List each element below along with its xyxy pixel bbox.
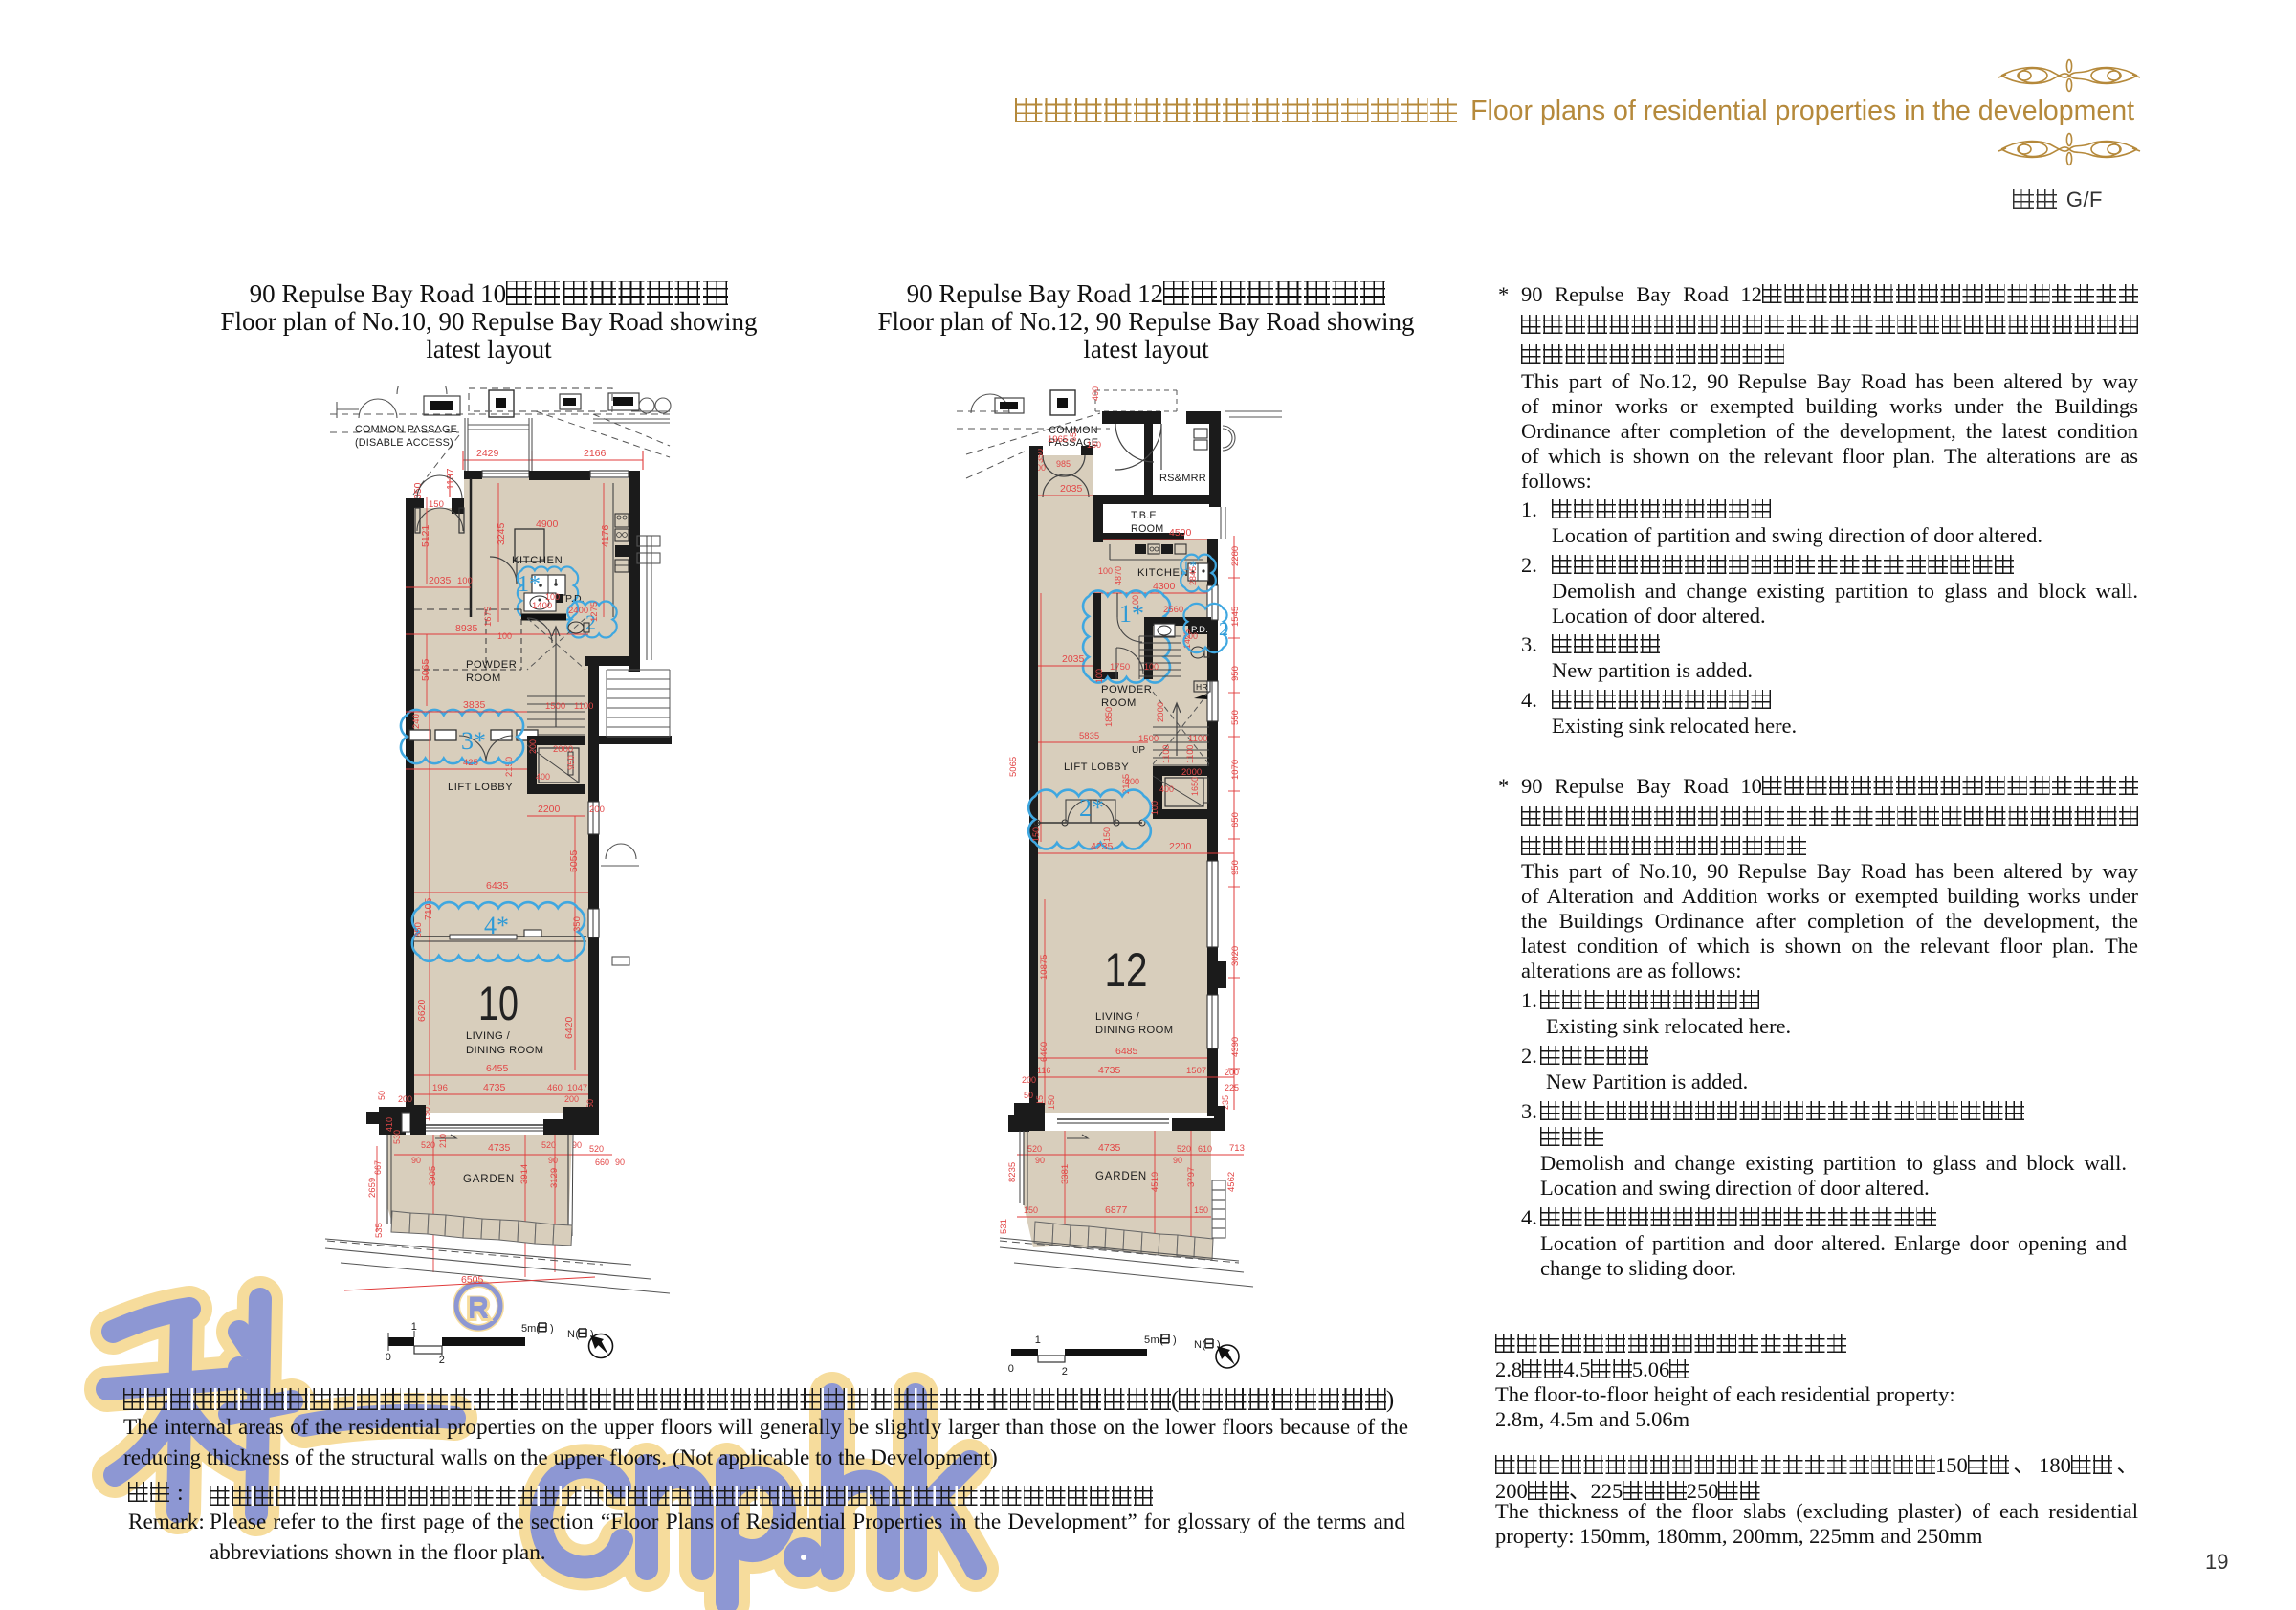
svg-text:10875: 10875 bbox=[1039, 955, 1049, 980]
svg-text:150: 150 bbox=[1194, 1205, 1208, 1215]
svg-text:2: 2 bbox=[1062, 1366, 1069, 1378]
svg-text:610: 610 bbox=[1198, 1144, 1212, 1154]
svg-text:6455: 6455 bbox=[486, 1063, 509, 1074]
svg-text:1850: 1850 bbox=[1104, 707, 1115, 727]
svg-text:0: 0 bbox=[1008, 1363, 1015, 1375]
svg-text:520: 520 bbox=[589, 1144, 604, 1154]
svg-text:4735: 4735 bbox=[1098, 1065, 1121, 1076]
svg-text:HR: HR bbox=[1196, 682, 1208, 692]
svg-text:6435: 6435 bbox=[486, 880, 509, 892]
svg-text:2000: 2000 bbox=[553, 744, 573, 755]
svg-text:2200: 2200 bbox=[1169, 841, 1192, 852]
svg-text:0: 0 bbox=[386, 1352, 392, 1363]
svg-text:2280: 2280 bbox=[1230, 546, 1241, 566]
svg-text:1965: 1965 bbox=[1048, 434, 1068, 445]
svg-text:2659: 2659 bbox=[367, 1178, 378, 1198]
svg-text:350: 350 bbox=[413, 922, 424, 937]
svg-text:LIFT LOBBY: LIFT LOBBY bbox=[448, 782, 513, 793]
svg-text:4900: 4900 bbox=[536, 518, 559, 530]
svg-text:LIVING /: LIVING / bbox=[1095, 1011, 1140, 1023]
svg-text:90: 90 bbox=[572, 1140, 582, 1150]
svg-text:4870: 4870 bbox=[1114, 566, 1123, 585]
svg-text:90: 90 bbox=[1035, 1156, 1045, 1165]
svg-text:3914: 3914 bbox=[519, 1164, 530, 1184]
svg-text:4500: 4500 bbox=[1169, 527, 1192, 539]
svg-text:ROOM: ROOM bbox=[1131, 523, 1163, 535]
svg-text:1100: 1100 bbox=[574, 701, 593, 712]
svg-text:50: 50 bbox=[1024, 1091, 1033, 1100]
svg-text:1100: 1100 bbox=[1188, 734, 1207, 744]
svg-text:985: 985 bbox=[1056, 459, 1071, 469]
svg-text:GARDEN: GARDEN bbox=[463, 1174, 515, 1185]
svg-text:410: 410 bbox=[385, 1117, 394, 1132]
svg-text:520: 520 bbox=[1027, 1144, 1042, 1154]
svg-text:4235: 4235 bbox=[1091, 841, 1114, 852]
svg-text:100: 100 bbox=[545, 592, 560, 602]
svg-text:5m(: 5m( bbox=[521, 1323, 540, 1334]
svg-text:100: 100 bbox=[1094, 669, 1104, 683]
svg-text:950: 950 bbox=[1230, 860, 1241, 875]
svg-text:1047: 1047 bbox=[567, 1083, 587, 1093]
svg-text:400: 400 bbox=[536, 772, 550, 782]
svg-text:200: 200 bbox=[398, 1094, 412, 1104]
svg-text:N(: N( bbox=[567, 1329, 579, 1340]
svg-text:DINING ROOM: DINING ROOM bbox=[466, 1045, 543, 1056]
svg-text:1100: 1100 bbox=[1161, 745, 1171, 763]
svg-text:2035: 2035 bbox=[1060, 483, 1083, 495]
svg-text:225: 225 bbox=[1225, 1083, 1239, 1092]
svg-text:2000: 2000 bbox=[1156, 702, 1166, 722]
svg-text:1: 1 bbox=[1035, 1334, 1042, 1346]
svg-text:90: 90 bbox=[615, 1158, 625, 1167]
svg-text:1275: 1275 bbox=[589, 602, 600, 622]
svg-text:6460: 6460 bbox=[1039, 1042, 1049, 1062]
svg-text:5055: 5055 bbox=[568, 849, 580, 872]
svg-text:2: 2 bbox=[1219, 619, 1228, 640]
svg-text:4176: 4176 bbox=[600, 524, 611, 547]
svg-text:4735: 4735 bbox=[483, 1082, 506, 1093]
svg-text:1750: 1750 bbox=[1110, 662, 1130, 673]
svg-text:2000: 2000 bbox=[1181, 767, 1202, 778]
svg-text:200: 200 bbox=[1125, 777, 1139, 786]
svg-text:10: 10 bbox=[478, 977, 519, 1030]
svg-text:3020: 3020 bbox=[1230, 946, 1241, 966]
svg-text:5835: 5835 bbox=[1079, 731, 1099, 741]
svg-text:2429: 2429 bbox=[476, 448, 499, 459]
svg-text:667: 667 bbox=[373, 1160, 383, 1175]
svg-text:(DISABLE ACCESS): (DISABLE ACCESS) bbox=[355, 437, 453, 449]
svg-text:COMMON PASSAGE: COMMON PASSAGE bbox=[355, 424, 457, 435]
svg-text:200: 200 bbox=[528, 739, 538, 754]
svg-text:1100: 1100 bbox=[1185, 745, 1195, 763]
svg-text:150: 150 bbox=[1087, 440, 1101, 450]
svg-text:): ) bbox=[550, 1323, 554, 1334]
svg-text:150: 150 bbox=[1102, 827, 1112, 842]
svg-text:4519: 4519 bbox=[1150, 1172, 1160, 1192]
svg-text:1507: 1507 bbox=[1186, 1066, 1206, 1076]
svg-text:950: 950 bbox=[566, 755, 577, 770]
svg-text:6877: 6877 bbox=[1105, 1204, 1128, 1216]
svg-text:1400: 1400 bbox=[532, 601, 552, 611]
svg-text:50: 50 bbox=[377, 1091, 386, 1100]
svg-text:3129: 3129 bbox=[549, 1168, 560, 1188]
svg-text:196: 196 bbox=[432, 1083, 448, 1093]
svg-text:100: 100 bbox=[1131, 595, 1140, 609]
svg-text:5065: 5065 bbox=[1008, 757, 1019, 777]
svg-text:4735: 4735 bbox=[1098, 1142, 1121, 1154]
svg-text:520: 520 bbox=[1177, 1144, 1191, 1154]
svg-text:3*: 3* bbox=[461, 727, 486, 755]
svg-text:1070: 1070 bbox=[1230, 760, 1241, 780]
svg-text:4*: 4* bbox=[484, 912, 509, 939]
svg-text:150: 150 bbox=[1024, 1205, 1038, 1215]
svg-text:200: 200 bbox=[1022, 1075, 1036, 1085]
svg-text:2845: 2845 bbox=[1188, 566, 1198, 585]
svg-text:2166: 2166 bbox=[584, 448, 607, 459]
svg-text:200: 200 bbox=[589, 805, 605, 815]
svg-text:3797: 3797 bbox=[1186, 1167, 1197, 1187]
svg-text:90: 90 bbox=[548, 1156, 558, 1165]
svg-text:): ) bbox=[1173, 1334, 1177, 1346]
svg-text:T.B.E: T.B.E bbox=[1131, 510, 1157, 521]
svg-text:650: 650 bbox=[1230, 812, 1241, 827]
svg-text:5121: 5121 bbox=[420, 524, 431, 547]
svg-text:116: 116 bbox=[1037, 1066, 1050, 1075]
svg-text:2035: 2035 bbox=[429, 575, 452, 586]
svg-text:210: 210 bbox=[438, 1134, 448, 1148]
svg-text:1500: 1500 bbox=[545, 701, 565, 712]
svg-text:425: 425 bbox=[463, 758, 478, 768]
svg-text:ROOM: ROOM bbox=[466, 673, 501, 684]
svg-text:3835: 3835 bbox=[463, 699, 486, 711]
svg-text:1545: 1545 bbox=[1230, 607, 1241, 627]
svg-text:100: 100 bbox=[1098, 566, 1113, 576]
svg-text:1: 1 bbox=[411, 1321, 418, 1333]
svg-text:2400: 2400 bbox=[568, 606, 588, 616]
svg-text:RS&MRR: RS&MRR bbox=[1159, 473, 1206, 484]
svg-text:POWDER: POWDER bbox=[1101, 684, 1152, 695]
svg-text:520: 520 bbox=[541, 1140, 556, 1150]
svg-text:2150: 2150 bbox=[504, 757, 515, 777]
svg-text:400: 400 bbox=[1159, 784, 1174, 794]
svg-text:535: 535 bbox=[374, 1223, 385, 1238]
svg-text:8935: 8935 bbox=[455, 623, 478, 634]
svg-text:100: 100 bbox=[1144, 662, 1159, 672]
svg-text:2035: 2035 bbox=[1062, 653, 1085, 665]
svg-text:460: 460 bbox=[547, 1083, 563, 1093]
svg-text:2560: 2560 bbox=[1163, 605, 1183, 615]
svg-text:350: 350 bbox=[572, 916, 583, 932]
svg-text:100: 100 bbox=[497, 631, 512, 641]
svg-text:713: 713 bbox=[1229, 1143, 1245, 1154]
svg-text:6420: 6420 bbox=[563, 1016, 575, 1039]
svg-text:100: 100 bbox=[457, 576, 473, 586]
svg-text:950: 950 bbox=[1230, 666, 1241, 681]
svg-text:90: 90 bbox=[411, 1156, 421, 1165]
svg-text:LIVING /: LIVING / bbox=[466, 1030, 511, 1042]
svg-text:240: 240 bbox=[411, 714, 422, 729]
svg-text:4735: 4735 bbox=[488, 1142, 511, 1154]
svg-text:DINING ROOM: DINING ROOM bbox=[1095, 1025, 1173, 1036]
svg-text:90: 90 bbox=[1173, 1156, 1182, 1165]
svg-text:660: 660 bbox=[595, 1158, 609, 1167]
svg-text:3245: 3245 bbox=[496, 522, 507, 545]
svg-text:1650: 1650 bbox=[1190, 777, 1200, 796]
svg-text:200: 200 bbox=[564, 1094, 579, 1104]
svg-text:UP: UP bbox=[1132, 745, 1145, 756]
svg-text:LIFT LOBBY: LIFT LOBBY bbox=[1064, 761, 1129, 773]
svg-text:5065: 5065 bbox=[420, 658, 431, 681]
svg-text:3381: 3381 bbox=[1060, 1164, 1071, 1184]
svg-text:12: 12 bbox=[1105, 943, 1148, 997]
svg-text:2*: 2* bbox=[1079, 794, 1104, 822]
svg-text:KITCHEN: KITCHEN bbox=[512, 555, 563, 566]
svg-text:GARDEN: GARDEN bbox=[1095, 1171, 1147, 1182]
svg-text:550: 550 bbox=[1230, 710, 1241, 725]
svg-text:6620: 6620 bbox=[416, 999, 428, 1022]
svg-text:8235: 8235 bbox=[1007, 1162, 1018, 1182]
svg-text:200: 200 bbox=[1225, 1068, 1239, 1077]
svg-text:530: 530 bbox=[392, 1130, 402, 1144]
svg-text:150: 150 bbox=[1047, 1095, 1056, 1110]
svg-text:5m(: 5m( bbox=[1144, 1334, 1163, 1346]
svg-text:400: 400 bbox=[1091, 386, 1100, 401]
svg-text:1675: 1675 bbox=[483, 607, 494, 627]
svg-text:N(: N( bbox=[1194, 1339, 1205, 1351]
svg-text:4390: 4390 bbox=[1230, 1037, 1241, 1057]
svg-text:150: 150 bbox=[1031, 827, 1041, 842]
svg-text:POWDER: POWDER bbox=[466, 659, 517, 671]
svg-text:6485: 6485 bbox=[1115, 1046, 1138, 1057]
svg-text:651: 651 bbox=[1069, 428, 1078, 442]
svg-text:2200: 2200 bbox=[538, 804, 561, 815]
svg-text:4562: 4562 bbox=[1226, 1172, 1237, 1192]
svg-text:2: 2 bbox=[439, 1355, 446, 1366]
svg-text:3905: 3905 bbox=[428, 1166, 438, 1186]
svg-text:531: 531 bbox=[999, 1219, 1009, 1234]
